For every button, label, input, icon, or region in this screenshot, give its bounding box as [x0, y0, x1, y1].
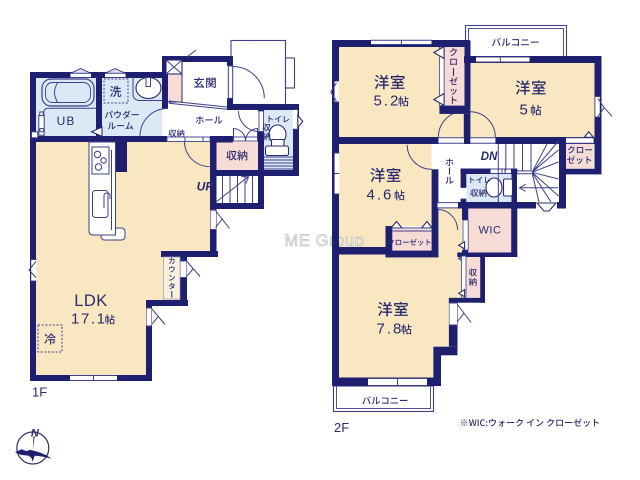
svg-text:UP: UP [197, 180, 215, 194]
svg-text:17.1: 17.1 [71, 311, 107, 328]
svg-text:2F: 2F [334, 420, 349, 435]
svg-text:N: N [31, 428, 40, 440]
svg-text:1F: 1F [32, 385, 47, 400]
svg-text:5: 5 [520, 102, 528, 119]
svg-text:4.6: 4.6 [367, 187, 394, 204]
svg-text:DN: DN [481, 151, 498, 163]
svg-text:UB: UB [57, 114, 76, 128]
svg-text:7.8: 7.8 [377, 321, 404, 338]
svg-text:5.2: 5.2 [374, 93, 401, 110]
svg-text:LDK: LDK [74, 292, 108, 310]
svg-text:WIC: WIC [479, 225, 502, 237]
